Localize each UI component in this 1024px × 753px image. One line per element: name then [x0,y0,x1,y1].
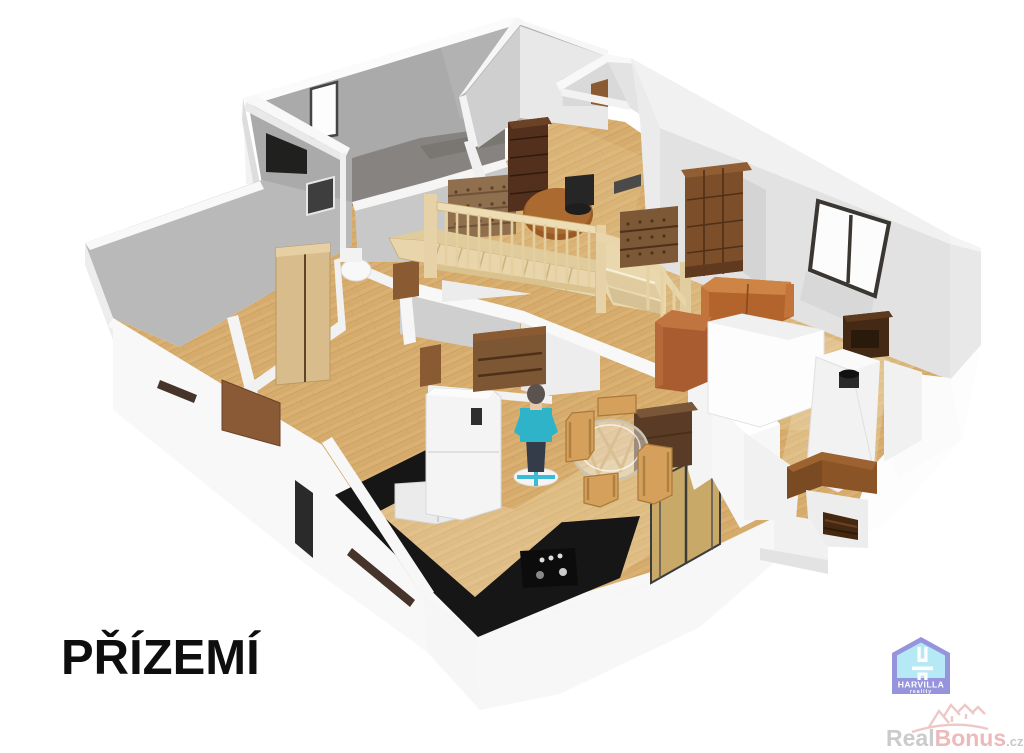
svg-text:PŘÍZEMÍ: PŘÍZEMÍ [61,630,261,685]
svg-text:reality: reality [910,689,932,695]
svg-text:RealBonus.cz: RealBonus.cz [886,725,1024,751]
svg-text:HARVILLA: HARVILLA [898,680,945,690]
